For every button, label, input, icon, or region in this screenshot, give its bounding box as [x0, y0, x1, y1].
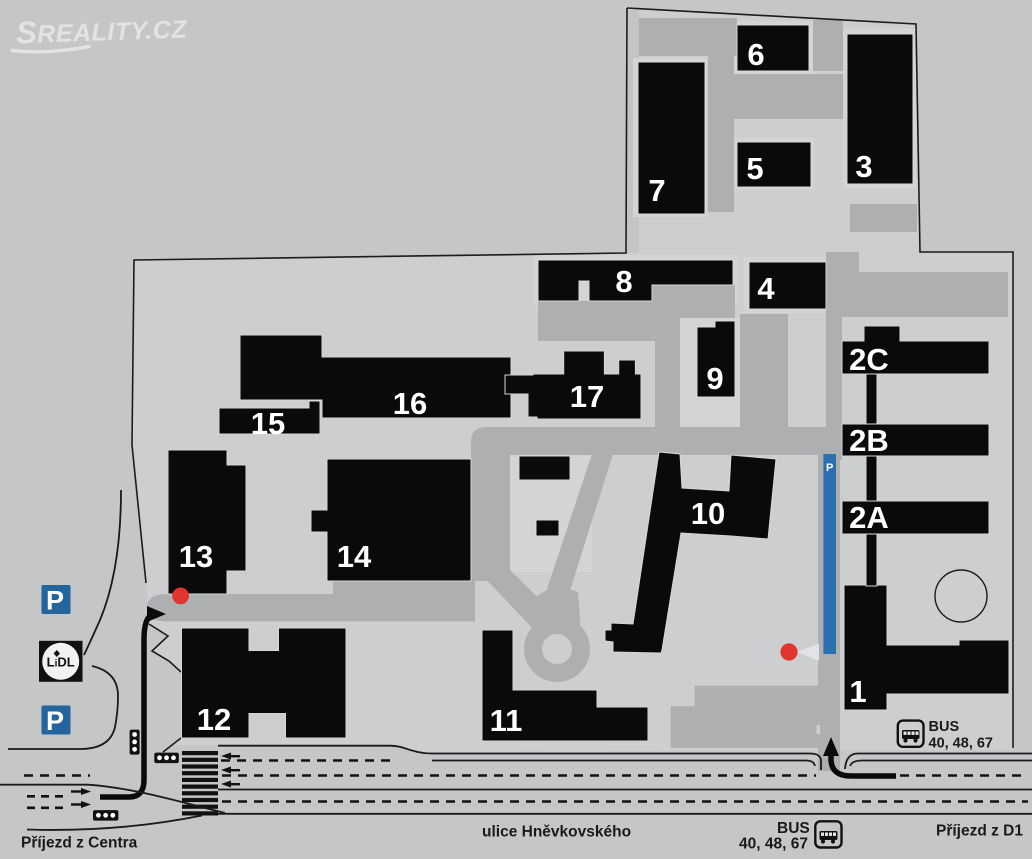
svg-text:Příjezd z D1: Příjezd z D1 — [936, 823, 1023, 840]
svg-text:2C: 2C — [849, 342, 889, 377]
svg-text:17: 17 — [570, 379, 604, 414]
svg-text:2A: 2A — [849, 500, 889, 535]
svg-text:BUS: BUS — [777, 820, 810, 837]
svg-text:2B: 2B — [849, 423, 889, 458]
svg-text:14: 14 — [337, 539, 372, 574]
svg-text:P: P — [46, 586, 64, 616]
svg-text:10: 10 — [691, 496, 725, 531]
svg-text:12: 12 — [197, 702, 231, 737]
svg-text:P: P — [46, 706, 64, 736]
svg-text:13: 13 — [179, 539, 213, 574]
svg-text:ulice Hněvkovského: ulice Hněvkovského — [482, 824, 631, 841]
svg-text:5: 5 — [746, 151, 763, 186]
svg-text:6: 6 — [747, 37, 764, 72]
svg-text:15: 15 — [251, 406, 285, 441]
svg-text:Příjezd z Centra: Příjezd z Centra — [21, 835, 138, 852]
svg-text:11: 11 — [490, 703, 523, 738]
svg-text:40, 48, 67: 40, 48, 67 — [739, 836, 808, 853]
svg-text:3: 3 — [855, 149, 872, 184]
svg-text:P: P — [826, 462, 833, 474]
svg-text:8: 8 — [615, 264, 632, 299]
svg-text:LiDL: LiDL — [47, 655, 75, 670]
svg-text:7: 7 — [648, 173, 665, 208]
svg-text:BUS: BUS — [929, 719, 960, 735]
svg-text:1: 1 — [849, 674, 866, 709]
svg-text:40, 48, 67: 40, 48, 67 — [929, 736, 994, 752]
svg-text:16: 16 — [393, 386, 427, 421]
svg-text:4: 4 — [757, 271, 775, 306]
svg-text:9: 9 — [706, 361, 723, 396]
